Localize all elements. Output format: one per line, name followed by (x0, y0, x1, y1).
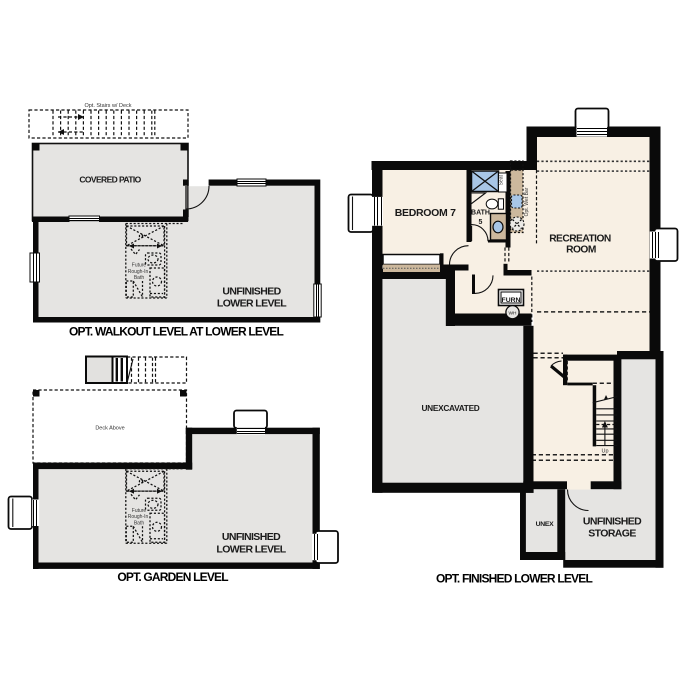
svg-text:OPT. WALKOUT LEVEL AT LOWER LE: OPT. WALKOUT LEVEL AT LOWER LEVEL (69, 325, 284, 339)
svg-text:UNFINISHED: UNFINISHED (222, 286, 281, 298)
svg-text:Deck Above: Deck Above (95, 426, 124, 432)
svg-text:Future: Future (132, 263, 147, 269)
svg-text:UNFINISHED: UNFINISHED (222, 531, 281, 543)
svg-text:STORAGE: STORAGE (588, 528, 636, 540)
svg-text:UNEXCAVATED: UNEXCAVATED (421, 403, 479, 413)
svg-text:Rough-In: Rough-In (128, 269, 149, 275)
svg-text:Opt. Stairs w/ Deck: Opt. Stairs w/ Deck (84, 103, 131, 109)
svg-text:Seat: Seat (499, 174, 505, 185)
svg-text:BEDROOM 7: BEDROOM 7 (395, 207, 456, 219)
svg-text:5: 5 (479, 219, 483, 226)
svg-text:UNFINISHED: UNFINISHED (583, 516, 642, 528)
svg-text:WH: WH (509, 310, 518, 316)
svg-text:OPT. FINISHED LOWER LEVEL: OPT. FINISHED LOWER LEVEL (436, 572, 592, 586)
svg-text:LOWER LEVEL: LOWER LEVEL (217, 298, 287, 310)
svg-text:COVERED PATIO: COVERED PATIO (79, 175, 141, 185)
svg-text:BATH: BATH (471, 210, 490, 217)
svg-text:ROOM: ROOM (566, 245, 596, 256)
svg-text:OPT. GARDEN LEVEL: OPT. GARDEN LEVEL (117, 570, 228, 584)
svg-text:Up: Up (601, 449, 608, 455)
svg-text:Opt. Wet Bar: Opt. Wet Bar (524, 187, 530, 216)
svg-text:Bath: Bath (134, 275, 145, 281)
svg-text:UNEX: UNEX (536, 521, 554, 528)
svg-text:LOWER LEVEL: LOWER LEVEL (216, 544, 286, 556)
svg-text:RECREATION: RECREATION (549, 234, 611, 245)
svg-text:FURN: FURN (502, 297, 521, 304)
